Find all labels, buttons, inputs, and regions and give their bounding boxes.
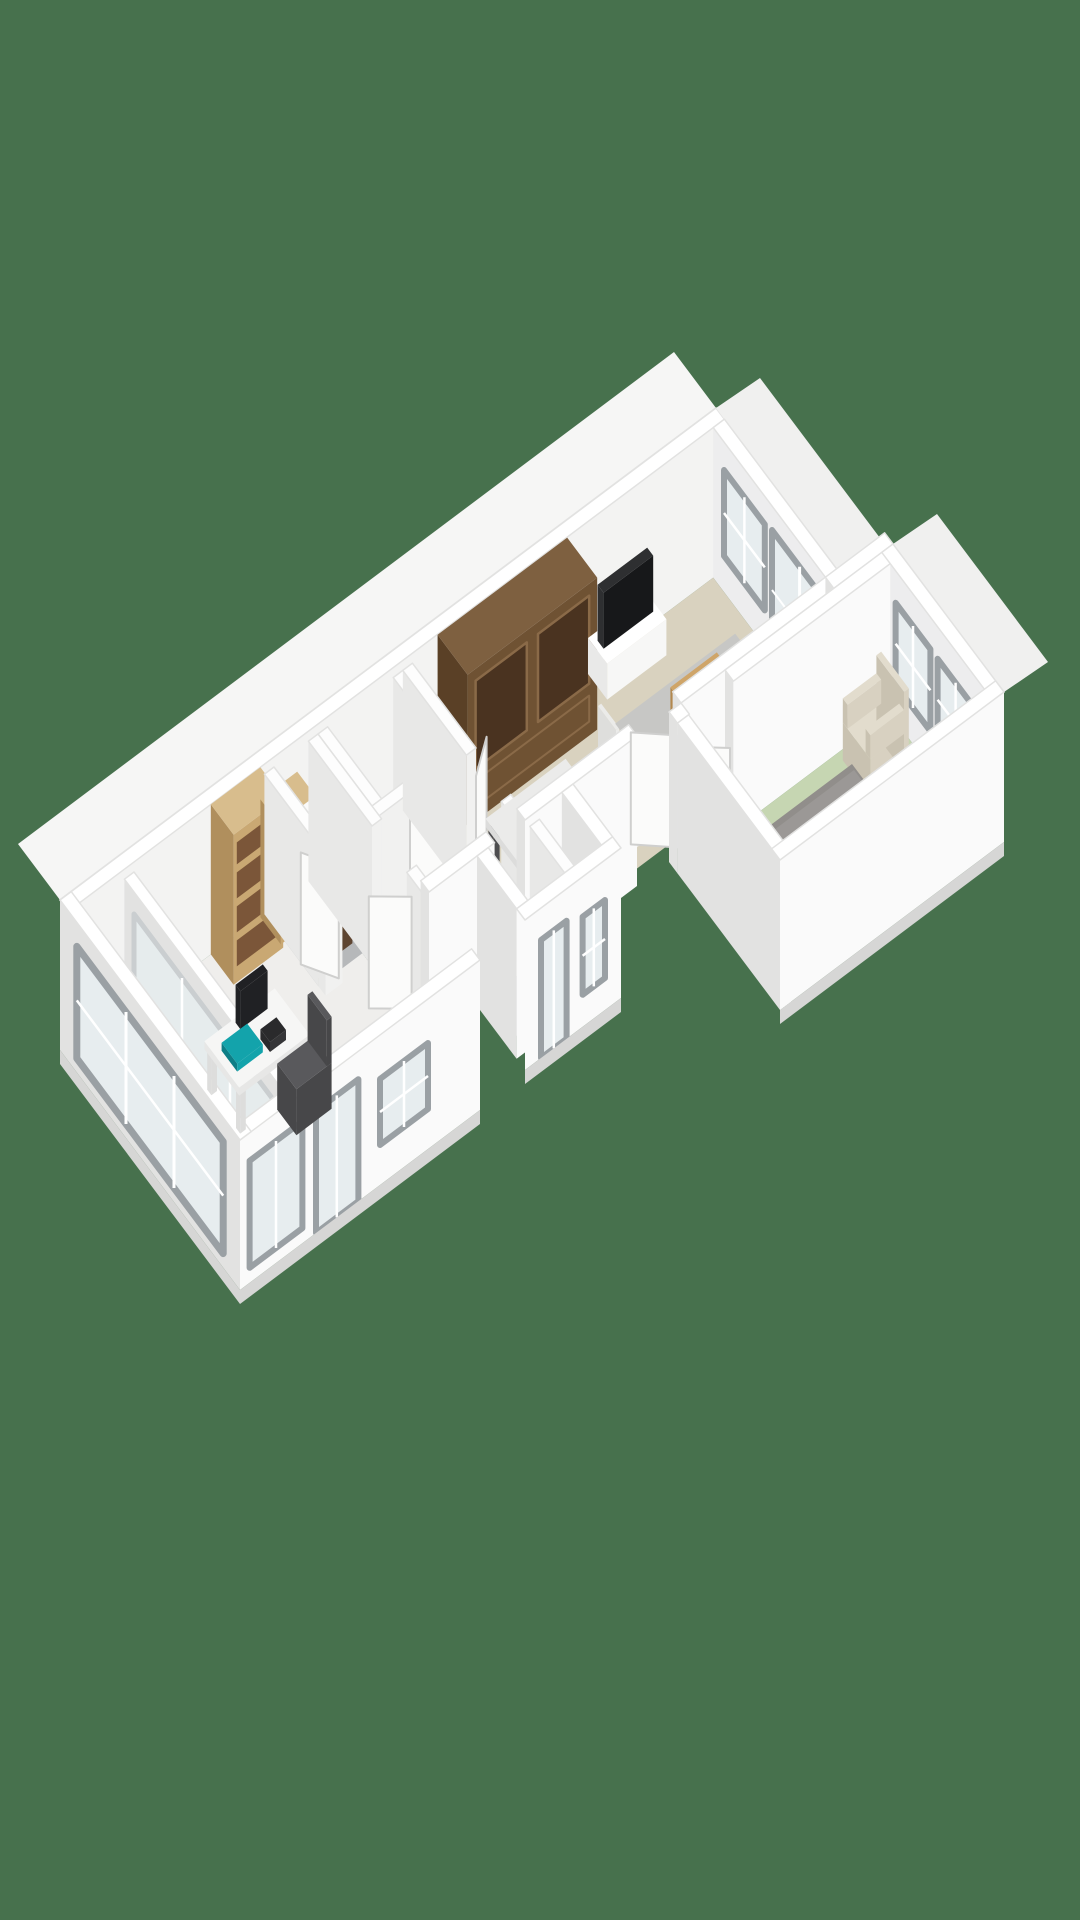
desk-leg: [240, 1089, 246, 1133]
office-door: [369, 896, 412, 1008]
monitor: [236, 985, 241, 1029]
desk-chair-back: [327, 1017, 332, 1067]
tv: [598, 585, 604, 649]
floorplan-scene: [0, 0, 1080, 1920]
bookshelf: [211, 804, 234, 984]
bedroom-nw-wall-face: [669, 712, 677, 873]
floorplan-3d-render: [0, 0, 1080, 1920]
